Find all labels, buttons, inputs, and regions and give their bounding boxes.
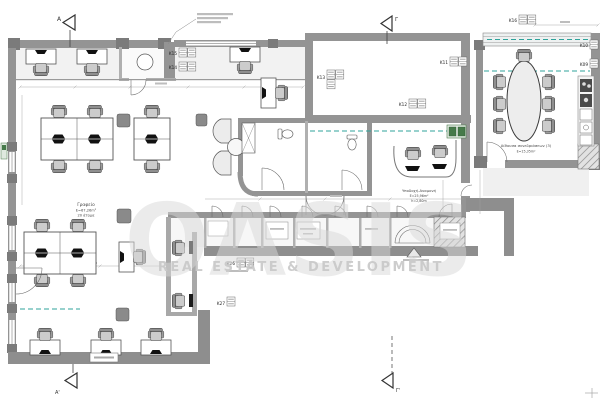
section-a-top: Α — [57, 16, 62, 23]
tag-k10: K10 — [580, 43, 588, 48]
section-arrow-icon — [382, 373, 393, 388]
tag-k13: K13 — [317, 75, 325, 80]
section-arrow-icon — [65, 373, 77, 388]
watermark-tagline: REAL ESTATE & DEVELOPMENT — [158, 260, 444, 275]
wall-plaque — [90, 353, 118, 362]
meeting-room-name: Αίθουσα συνεδριάσεων (3) — [501, 143, 552, 148]
planter — [447, 125, 466, 138]
meeting-room-area: E=15,35m² — [517, 150, 536, 154]
tag-k15: K15 — [169, 51, 177, 56]
office-area: E=67,26m² — [76, 209, 97, 213]
office-capacity: 20 άτομα — [77, 214, 95, 218]
watermark: OASIS REAL ESTATE & DEVELOPMENT — [125, 182, 476, 299]
desk-workstation — [141, 328, 171, 355]
desk-pod — [134, 105, 170, 172]
desk-workstation — [261, 78, 288, 108]
tag-k27: K27 — [217, 301, 225, 306]
section-gamma-top: Γ — [395, 17, 399, 23]
desk-workstation — [30, 328, 60, 355]
tub-chair — [213, 151, 231, 175]
tag-k11: K11 — [440, 60, 448, 65]
tag-k16: K16 — [509, 18, 517, 23]
chair — [543, 118, 555, 134]
office-name: Γραφείο — [77, 201, 95, 208]
floor-plan: K15 K14 K16 K10 K09 K11 K13 K12 K26 K27 … — [0, 0, 600, 400]
section-arrow-icon — [381, 16, 392, 31]
round-table — [137, 54, 153, 70]
chair — [405, 147, 421, 159]
chair — [543, 96, 555, 112]
desk-pod — [24, 219, 96, 286]
chair — [543, 74, 555, 90]
chair — [493, 96, 505, 112]
tub-chair — [213, 119, 231, 143]
tag-k14: K14 — [169, 65, 177, 70]
chair — [432, 145, 448, 157]
tag-k09: K09 — [580, 62, 588, 67]
conference-table — [507, 61, 541, 141]
section-gamma-bottom: Γ' — [396, 388, 400, 394]
desk-workstation — [91, 328, 121, 355]
planter — [1, 143, 7, 159]
section-arrow-icon — [63, 15, 75, 30]
chair — [516, 49, 532, 61]
chair — [493, 118, 505, 134]
chair — [493, 74, 505, 90]
note-leader — [168, 13, 233, 44]
tag-k12: K12 — [399, 102, 407, 107]
toilet — [347, 135, 357, 150]
toilet — [278, 129, 293, 139]
section-a-bottom: Α' — [55, 390, 60, 396]
reception-counter — [394, 140, 456, 177]
desk-pod — [41, 105, 113, 172]
watermark-brand: OASIS — [125, 182, 476, 299]
